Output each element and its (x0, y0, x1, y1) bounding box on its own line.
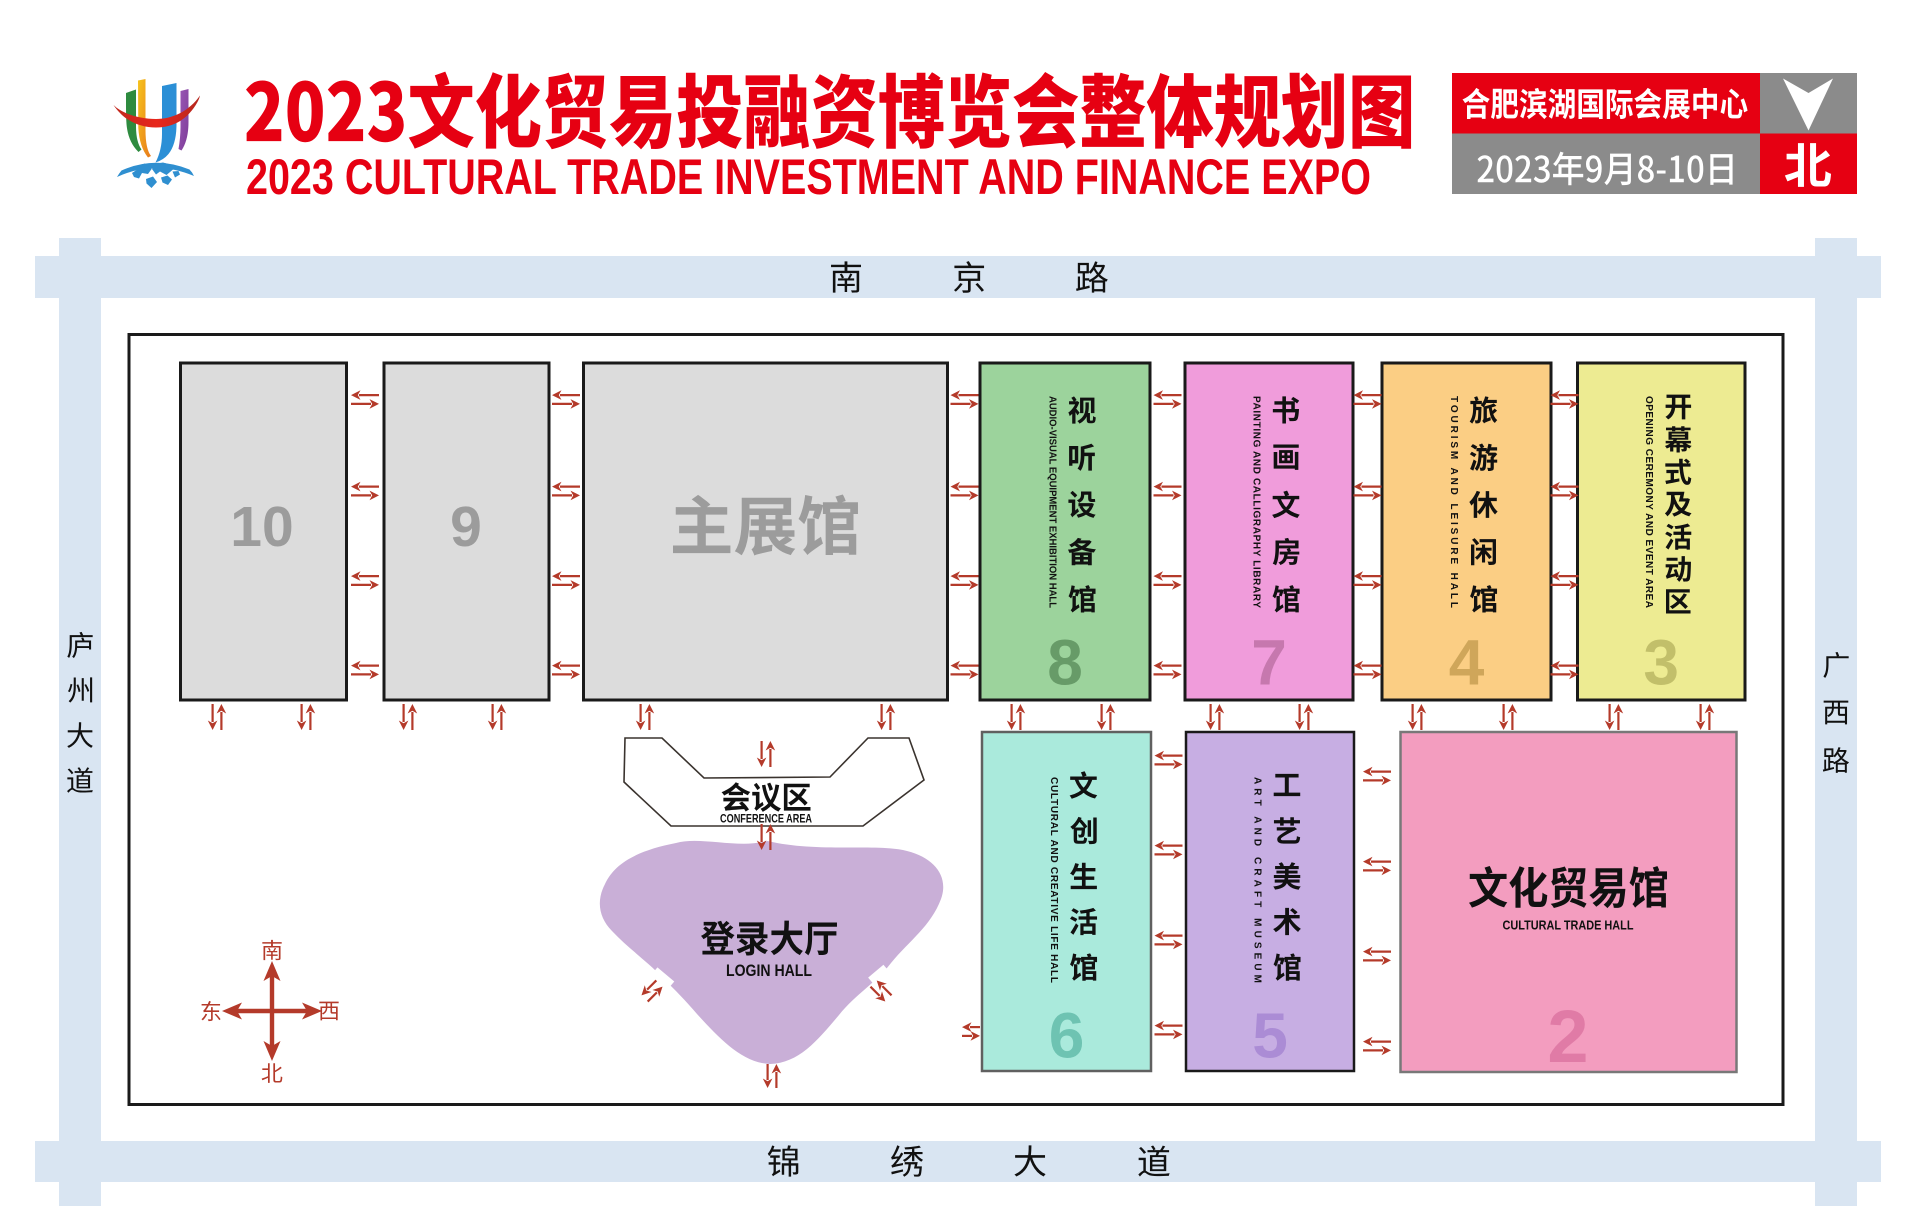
svg-text:2: 2 (1547, 995, 1588, 1078)
svg-text:10: 10 (230, 495, 293, 559)
svg-text:CULTURAL AND CREATIVE LIFE HAL: CULTURAL AND CREATIVE LIFE HALL (1048, 777, 1059, 983)
svg-text:OPENING CEREMONY AND EVENT ARE: OPENING CEREMONY AND EVENT AREA (1643, 396, 1654, 608)
svg-text:CONFERENCE AREA: CONFERENCE AREA (720, 814, 812, 826)
svg-text:5: 5 (1252, 999, 1288, 1071)
svg-text:8: 8 (1047, 626, 1083, 698)
svg-text:6: 6 (1049, 999, 1085, 1071)
svg-text:CULTURAL TRADE HALL: CULTURAL TRADE HALL (1503, 918, 1634, 933)
svg-text:7: 7 (1251, 626, 1287, 698)
svg-text:9: 9 (450, 495, 482, 559)
svg-text:3: 3 (1643, 626, 1679, 698)
svg-text:2023 CULTURAL TRADE INVESTMENT: 2023 CULTURAL TRADE INVESTMENT AND FINAN… (246, 149, 1371, 205)
svg-text:LOGIN HALL: LOGIN HALL (726, 961, 812, 980)
svg-text:PAINTING AND CALLIGRAPHY LIBRA: PAINTING AND CALLIGRAPHY LIBRARY (1251, 396, 1262, 608)
svg-text:4: 4 (1449, 626, 1485, 698)
svg-text:AUDIO-VISUAL EQUIPMENT EXHIBIT: AUDIO-VISUAL EQUIPMENT EXHIBITION HALL (1047, 396, 1058, 608)
